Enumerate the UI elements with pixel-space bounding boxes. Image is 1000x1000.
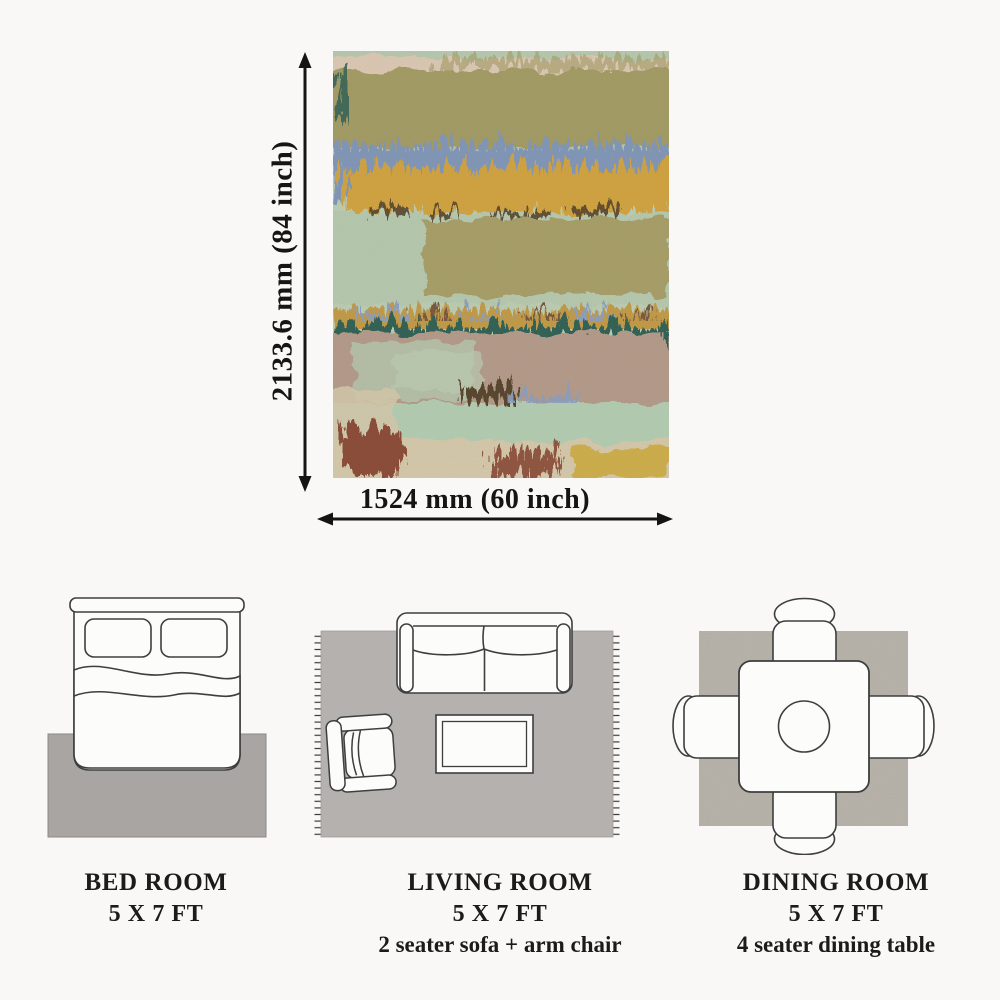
room-size: 5 X 7 FT	[676, 901, 996, 928]
room-size: 5 X 7 FT	[330, 901, 670, 928]
bedroom-diagram	[40, 590, 276, 850]
room-size: 5 X 7 FT	[16, 901, 296, 928]
room-name: DINING ROOM	[676, 869, 996, 897]
rug-fringe-left	[315, 633, 322, 836]
bedroom-labels: BED ROOM 5 X 7 FT	[16, 869, 296, 932]
bed-pillow-left	[85, 619, 151, 657]
living-room-diagram	[305, 600, 625, 845]
room-name: BED ROOM	[16, 869, 296, 897]
bed-pillow-right	[161, 619, 227, 657]
room-note: 4 seater dining table	[676, 932, 996, 958]
bed-headboard	[70, 598, 244, 612]
armchair-arm-bottom	[340, 775, 397, 793]
rug-image	[333, 51, 669, 478]
height-dimension-label: 2133.6 mm (84 inch)	[267, 141, 300, 402]
sofa-arm-right	[557, 624, 570, 692]
bed-blanket	[74, 666, 240, 768]
coffee-table-icon	[436, 715, 533, 773]
sofa-icon	[397, 613, 572, 693]
dining-table-icon	[739, 661, 869, 792]
rug-art-layers	[333, 51, 669, 478]
width-dimension-label: 1524 mm (60 inch)	[360, 484, 590, 516]
dining-room-labels: DINING ROOM 5 X 7 FT 4 seater dining tab…	[676, 869, 996, 958]
armchair-seat	[343, 727, 395, 779]
dining-room-diagram	[665, 585, 975, 855]
armchair-icon	[325, 714, 396, 793]
armchair-arm-top	[335, 714, 392, 732]
living-room-labels: LIVING ROOM 5 X 7 FT 2 seater sofa + arm…	[330, 869, 670, 958]
bed-icon	[70, 598, 244, 770]
sofa-arm-left	[400, 624, 413, 692]
room-note: 2 seater sofa + arm chair	[330, 932, 670, 958]
rug-fringe-right	[613, 633, 620, 836]
room-name: LIVING ROOM	[330, 869, 670, 897]
